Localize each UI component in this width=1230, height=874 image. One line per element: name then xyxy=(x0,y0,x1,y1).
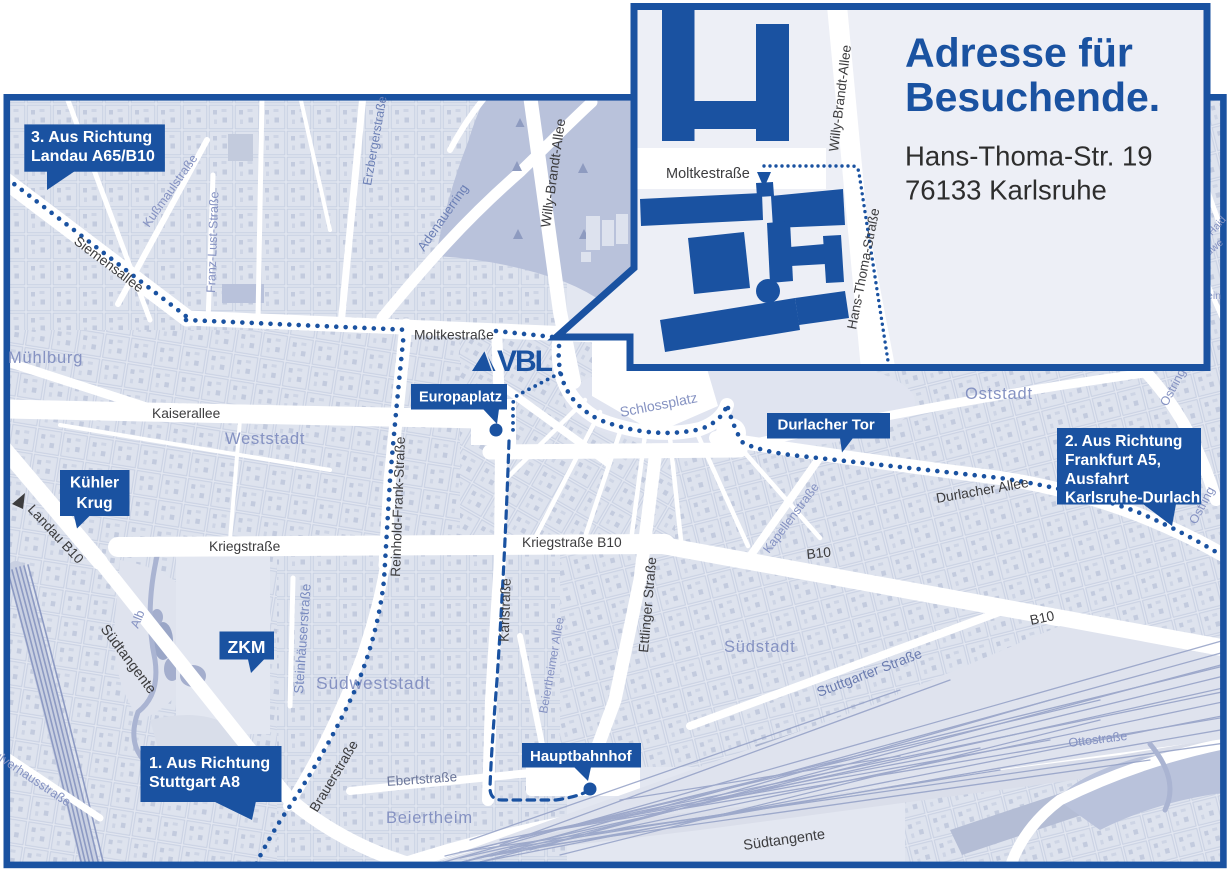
svg-text:Südstadt: Südstadt xyxy=(724,638,796,656)
svg-text:Krug: Krug xyxy=(76,495,112,512)
svg-text:Karlsruhe-Durlach: Karlsruhe-Durlach xyxy=(1065,490,1200,507)
svg-text:Europaplatz: Europaplatz xyxy=(419,390,502,406)
svg-text:Kriegstraße B10: Kriegstraße B10 xyxy=(522,535,622,550)
svg-text:Frankfurt A5,: Frankfurt A5, xyxy=(1065,452,1161,469)
svg-text:Kriegstraße: Kriegstraße xyxy=(209,539,281,554)
svg-text:Durlacher Tor: Durlacher Tor xyxy=(778,417,875,434)
svg-text:Kühler: Kühler xyxy=(70,475,119,492)
svg-text:Moltkestraße: Moltkestraße xyxy=(666,166,750,182)
svg-text:Beiertheim: Beiertheim xyxy=(386,809,473,827)
svg-text:VBL: VBL xyxy=(497,345,553,378)
svg-text:Hauptbahnhof: Hauptbahnhof xyxy=(530,748,633,765)
svg-text:Adresse für: Adresse für xyxy=(905,30,1133,76)
svg-text:Oststadt: Oststadt xyxy=(965,385,1033,403)
svg-text:Stuttgart A8: Stuttgart A8 xyxy=(149,774,240,791)
svg-text:3. Aus Richtung: 3. Aus Richtung xyxy=(31,129,152,146)
svg-text:76133 Karlsruhe: 76133 Karlsruhe xyxy=(905,175,1107,206)
svg-text:ZKM: ZKM xyxy=(228,637,266,657)
svg-text:Landau A65/B10: Landau A65/B10 xyxy=(31,148,155,165)
svg-text:Hans-Thoma-Str. 19: Hans-Thoma-Str. 19 xyxy=(905,141,1153,172)
svg-text:Weststadt: Weststadt xyxy=(225,430,305,448)
svg-text:Moltkestraße: Moltkestraße xyxy=(414,328,494,343)
svg-text:B10: B10 xyxy=(806,544,832,562)
svg-text:Mühlburg: Mühlburg xyxy=(8,349,83,367)
svg-text:Besuchende.: Besuchende. xyxy=(905,74,1160,120)
svg-text:2. Aus Richtung: 2. Aus Richtung xyxy=(1065,433,1182,450)
svg-text:Ausfahrt: Ausfahrt xyxy=(1065,471,1129,488)
svg-text:Südweststadt: Südweststadt xyxy=(316,673,431,693)
svg-text:1. Aus Richtung: 1. Aus Richtung xyxy=(149,755,270,772)
svg-text:Kaiserallee: Kaiserallee xyxy=(152,406,221,421)
svg-text:Karlstraße: Karlstraße xyxy=(497,578,514,642)
